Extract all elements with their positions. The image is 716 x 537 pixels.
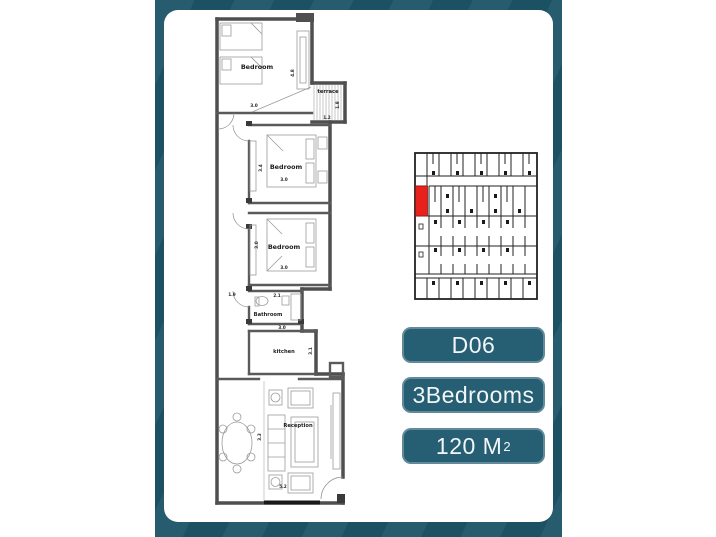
floorplan-drawing: Bedroom 4.8 3.0 terrace 1.8 1.2 Bedroom …	[204, 13, 380, 512]
bathroom-width-dim: 2.1	[273, 293, 281, 299]
bedroom1-width-dim: 3.0	[250, 103, 258, 109]
bathroom-label: Bathroom	[254, 312, 283, 318]
kitchen-height-dim: 3.1	[308, 347, 314, 355]
bedroom1-height-dim: 4.8	[290, 69, 296, 77]
wall-notch	[296, 13, 314, 22]
unit-type-label: 3Bedrooms	[412, 382, 534, 409]
reception-width-dim: 5.2	[279, 484, 287, 490]
terrace-height-dim: 1.8	[335, 101, 341, 109]
kitchen-label: kitchen	[273, 349, 295, 355]
unit-area-badge: 120 M2	[402, 428, 545, 464]
terrace-label: terrace	[317, 89, 339, 95]
reception-label: Reception	[283, 423, 313, 429]
unit-area-label: 120 M	[436, 433, 502, 460]
building-key-plan	[410, 150, 542, 302]
unit-area-superscript: 2	[503, 440, 511, 453]
unit-type-badge: 3Bedrooms	[402, 377, 545, 413]
kitchen-width-dim: 3.0	[278, 325, 286, 331]
bedroom1-label: Bedroom	[241, 63, 274, 71]
reception-furniture	[219, 381, 340, 501]
bedroom2-width-dim: 3.0	[280, 177, 288, 183]
bedroom3-label: Bedroom	[268, 243, 301, 251]
hall-width-dim: 1.9	[228, 292, 236, 298]
terrace-width-dim: 1.2	[323, 115, 331, 121]
bedroom2-label: Bedroom	[270, 163, 303, 171]
bedroom2-height-dim: 3.4	[258, 164, 264, 172]
highlighted-unit-marker	[416, 186, 428, 216]
entry-threshold	[264, 501, 320, 505]
bedroom3-width-dim: 3.0	[280, 265, 288, 271]
unit-code-label: D06	[452, 332, 496, 359]
bedroom3-height-dim: 3.0	[254, 241, 260, 249]
reception-height-dim: 3.3	[257, 433, 263, 441]
unit-code-badge: D06	[402, 327, 545, 363]
floorplan-card: Bedroom 4.8 3.0 terrace 1.8 1.2 Bedroom …	[164, 10, 553, 522]
